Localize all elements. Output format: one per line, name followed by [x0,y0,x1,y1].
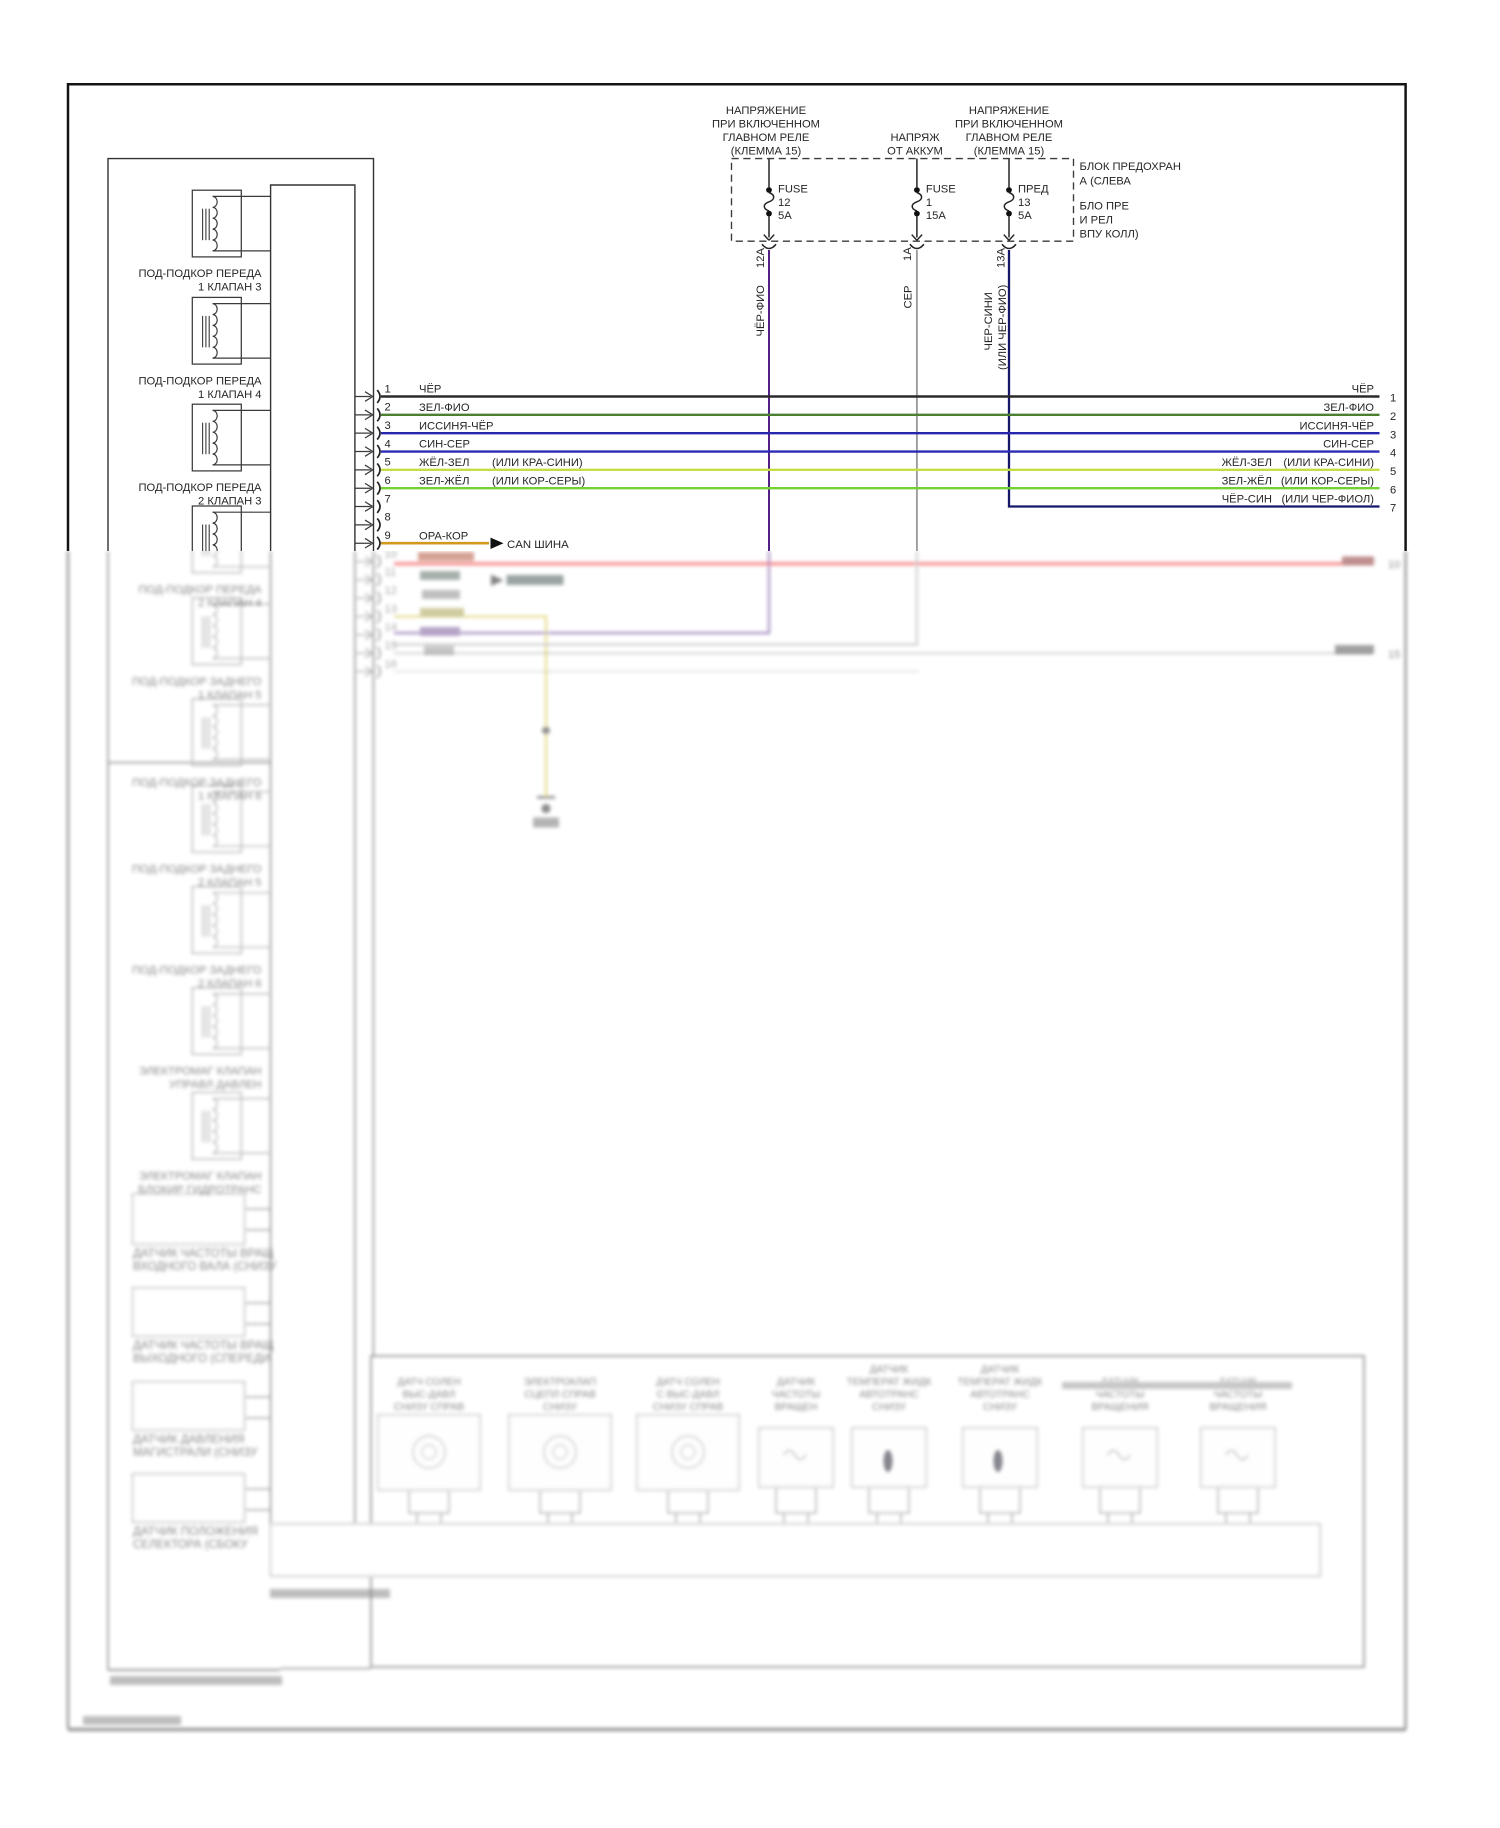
svg-text:ВРАЩЕН: ВРАЩЕН [775,1402,818,1413]
svg-text:ДАТЧИК: ДАТЧИК [777,1377,816,1388]
svg-text:СЕЛЕКТОРА (СБОКУ: СЕЛЕКТОРА (СБОКУ [133,1538,248,1551]
svg-text:ПРЕД: ПРЕД [1018,183,1049,195]
svg-text:(ИЛИ КРА-СИНИ): (ИЛИ КРА-СИНИ) [1283,457,1374,469]
svg-text:ДАТЧИК ЧАСТОТЫ ВРАЩ: ДАТЧИК ЧАСТОТЫ ВРАЩ [133,1247,274,1260]
svg-text:5: 5 [1390,466,1396,478]
svg-text:ВХОДНОГО ВАЛА (СНИЗУ: ВХОДНОГО ВАЛА (СНИЗУ [133,1260,277,1273]
svg-text:10: 10 [1388,559,1400,571]
svg-text:ДАТЧ СОЛЕН: ДАТЧ СОЛЕН [397,1377,460,1388]
svg-text:ПОД-ПОДКОР ЗАДНЕГО: ПОД-ПОДКОР ЗАДНЕГО [132,777,262,789]
svg-text:ДАТЧ СОЛЕН: ДАТЧ СОЛЕН [656,1377,719,1388]
svg-text:И РЕЛ: И РЕЛ [1080,215,1113,227]
svg-text:4: 4 [1390,448,1396,460]
svg-text:ВРАЩЕНИЯ: ВРАЩЕНИЯ [1091,1402,1148,1413]
svg-text:1 КЛАПАН 5: 1 КЛАПАН 5 [198,689,261,701]
svg-text:ВЫХОДНОГО (СПЕРЕДИ: ВЫХОДНОГО (СПЕРЕДИ [133,1352,270,1365]
svg-text:(ИЛИ КОР-СЕРЫ): (ИЛИ КОР-СЕРЫ) [1281,475,1374,487]
svg-text:НАПРЯЖЕНИЕ: НАПРЯЖЕНИЕ [969,105,1049,117]
svg-text:2 КЛАПАН 4: 2 КЛАПАН 4 [198,598,261,610]
svg-text:2 КЛАПАН 6: 2 КЛАПАН 6 [198,978,261,990]
svg-text:ЭЛЕКТРОМАГ КЛАПАН: ЭЛЕКТРОМАГ КЛАПАН [139,1066,261,1078]
svg-text:1: 1 [385,383,391,395]
svg-text:2 КЛАПАН 5: 2 КЛАПАН 5 [198,877,261,889]
svg-text:ДАТЧИК: ДАТЧИК [870,1365,909,1376]
svg-text:FUSE: FUSE [926,183,956,195]
svg-text:13: 13 [385,603,397,615]
svg-text:1 КЛАПАН 6: 1 КЛАПАН 6 [198,790,261,802]
svg-text:ПОД-ПОДКОР ПЕРЕДА: ПОД-ПОДКОР ПЕРЕДА [138,482,262,494]
svg-text:CAN ШИНА: CAN ШИНА [507,539,569,551]
svg-text:(ИЛИ КОР-СЕРЫ): (ИЛИ КОР-СЕРЫ) [492,475,585,487]
svg-text:ТЕМПЕРАТ ЖИДК: ТЕМПЕРАТ ЖИДК [847,1377,932,1388]
svg-text:ЖЁЛ-ЗЕЛ: ЖЁЛ-ЗЕЛ [419,457,469,469]
svg-text:СИН-СЕР: СИН-СЕР [1323,439,1374,451]
svg-text:4: 4 [385,438,391,450]
svg-text:АВТОТРАНС: АВТОТРАНС [970,1390,1029,1401]
svg-text:СНИЗУ: СНИЗУ [983,1402,1018,1413]
svg-text:ОРА-КОР: ОРА-КОР [419,530,468,542]
svg-text:БЛО ПРЕ: БЛО ПРЕ [1080,201,1129,213]
svg-text:1: 1 [926,197,932,209]
svg-text:1 КЛАПАН 3: 1 КЛАПАН 3 [198,282,261,294]
svg-text:8: 8 [385,512,391,524]
svg-text:ПОД-ПОДКОР ЗАДНЕГО: ПОД-ПОДКОР ЗАДНЕГО [132,676,262,688]
svg-text:11: 11 [385,567,397,579]
svg-text:А (СЛЕВА: А (СЛЕВА [1080,176,1132,188]
svg-text:ЧЁР-СИН: ЧЁР-СИН [1222,494,1272,506]
svg-text:ЖЁЛ-ЗЕЛ: ЖЁЛ-ЗЕЛ [1222,457,1272,469]
svg-text:ВПУ КОЛЛ): ВПУ КОЛЛ) [1080,229,1139,241]
svg-text:НАПРЯЖЕНИЕ: НАПРЯЖЕНИЕ [726,105,806,117]
svg-text:1: 1 [1390,393,1396,405]
svg-text:ЧАСТОТЫ: ЧАСТОТЫ [1096,1390,1145,1401]
svg-text:ГЛАВНОМ РЕЛЕ: ГЛАВНОМ РЕЛЕ [966,132,1053,144]
svg-text:ДАТЧИК ЧАСТОТЫ ВРАЩ: ДАТЧИК ЧАСТОТЫ ВРАЩ [133,1339,274,1352]
svg-text:1A: 1A [902,247,914,261]
svg-text:СНИЗУ СПРАВ: СНИЗУ СПРАВ [653,1402,724,1413]
svg-text:ЭЛЕКТРОМАГ КЛАПАН: ЭЛЕКТРОМАГ КЛАПАН [139,1170,261,1182]
svg-text:ЧЁР-ФИО: ЧЁР-ФИО [755,285,767,337]
svg-text:13A: 13A [996,248,1008,268]
svg-text:ПРИ ВКЛЮЧЕННОМ: ПРИ ВКЛЮЧЕННОМ [955,119,1063,131]
svg-text:(ИЛИ ЧЕР-ФИОЛ): (ИЛИ ЧЕР-ФИОЛ) [1281,494,1374,506]
svg-text:7: 7 [385,493,391,505]
svg-text:(КЛЕММА 15): (КЛЕММА 15) [974,146,1045,158]
svg-text:МАГИСТРАЛИ (СНИЗУ: МАГИСТРАЛИ (СНИЗУ [133,1446,258,1459]
svg-text:6: 6 [1390,484,1396,496]
svg-text:ЧАСТОТЫ: ЧАСТОТЫ [1214,1390,1263,1401]
svg-text:ЭЛЕКТРОКЛАП: ЭЛЕКТРОКЛАП [524,1377,596,1388]
svg-text:FUSE: FUSE [778,183,808,195]
svg-text:3: 3 [1390,429,1396,441]
svg-text:ИССИНЯ-ЧЁР: ИССИНЯ-ЧЁР [419,420,494,432]
svg-text:15A: 15A [926,210,946,222]
svg-text:13: 13 [1018,197,1030,209]
svg-text:5A: 5A [778,210,792,222]
svg-text:ПОД-ПОДКОР ПЕРЕДА: ПОД-ПОДКОР ПЕРЕДА [138,375,262,387]
svg-text:ЗЕЛ-ФИО: ЗЕЛ-ФИО [1323,402,1374,414]
svg-text:ВЫС-ДАВЛ: ВЫС-ДАВЛ [403,1390,456,1401]
svg-text:ДАТЧИК: ДАТЧИК [981,1365,1020,1376]
svg-text:СИН-СЕР: СИН-СЕР [419,439,470,451]
svg-text:АВТОТРАНС: АВТОТРАНС [859,1390,918,1401]
svg-text:ОТ АККУМ: ОТ АККУМ [887,146,943,158]
svg-text:ЗЕЛ-ЖЁЛ: ЗЕЛ-ЖЁЛ [1222,475,1272,487]
svg-text:6: 6 [385,475,391,487]
svg-text:15: 15 [385,640,397,652]
svg-text:ГЛАВНОМ РЕЛЕ: ГЛАВНОМ РЕЛЕ [723,132,810,144]
svg-text:СЦЕПЛ СПРАВ: СЦЕПЛ СПРАВ [524,1390,596,1401]
svg-text:5A: 5A [1018,210,1032,222]
svg-text:СЕР: СЕР [903,285,915,308]
svg-text:14: 14 [385,622,397,634]
svg-text:ИССИНЯ-ЧЁР: ИССИНЯ-ЧЁР [1299,420,1374,432]
svg-text:7: 7 [1390,503,1396,515]
svg-text:ПОД-ПОДКОР ЗАДНЕГО: ПОД-ПОДКОР ЗАДНЕГО [132,864,262,876]
svg-text:12A: 12A [755,248,767,268]
svg-text:СНИЗУ: СНИЗУ [543,1402,578,1413]
svg-text:ТЕМПЕРАТ ЖИДК: ТЕМПЕРАТ ЖИДК [958,1377,1043,1388]
svg-text:1 КЛАПАН 4: 1 КЛАПАН 4 [198,389,261,401]
svg-text:ЗЕЛ-ФИО: ЗЕЛ-ФИО [419,402,470,414]
svg-text:СНИЗУ СПРАВ: СНИЗУ СПРАВ [394,1402,465,1413]
svg-text:ЧЕР-СИНИ: ЧЕР-СИНИ [983,292,995,350]
svg-text:ПОД-ПОДКОР ЗАДНЕГО: ПОД-ПОДКОР ЗАДНЕГО [132,965,262,977]
svg-text:(ИЛИ КРА-СИНИ): (ИЛИ КРА-СИНИ) [492,457,583,469]
svg-text:ДАТЧИК ДАВЛЕНИЯ: ДАТЧИК ДАВЛЕНИЯ [133,1433,244,1446]
svg-text:БЛОКИР ГИДРОТРАНС: БЛОКИР ГИДРОТРАНС [138,1184,261,1196]
svg-text:ЧАСТОТЫ: ЧАСТОТЫ [772,1390,821,1401]
svg-text:2: 2 [1390,411,1396,423]
svg-text:2: 2 [385,402,391,414]
svg-text:ВРАЩЕНИЯ: ВРАЩЕНИЯ [1209,1402,1266,1413]
svg-text:СНИЗУ: СНИЗУ [872,1402,907,1413]
svg-text:(КЛЕММА 15): (КЛЕММА 15) [731,146,802,158]
svg-text:ДАТЧИК ПОЛОЖЕНИЯ: ДАТЧИК ПОЛОЖЕНИЯ [133,1525,258,1538]
svg-text:ЧЁР: ЧЁР [419,384,441,396]
svg-text:(ИЛИ ЧЕР-ФИО): (ИЛИ ЧЕР-ФИО) [997,284,1009,370]
svg-text:ПОД-ПОДКОР ПЕРЕДА: ПОД-ПОДКОР ПЕРЕДА [138,268,262,280]
svg-text:ЗЕЛ-ЖЁЛ: ЗЕЛ-ЖЁЛ [419,475,469,487]
svg-text:5: 5 [385,457,391,469]
svg-text:16: 16 [385,658,397,670]
svg-text:БЛОК ПРЕДОХРАН: БЛОК ПРЕДОХРАН [1080,161,1181,173]
svg-text:3: 3 [385,420,391,432]
svg-text:ЧЁР: ЧЁР [1352,384,1374,396]
svg-text:УПРАВЛ ДАВЛЕН: УПРАВЛ ДАВЛЕН [169,1079,261,1091]
svg-text:15: 15 [1388,649,1400,661]
svg-text:С ВЫС-ДАВЛ: С ВЫС-ДАВЛ [657,1390,720,1401]
svg-text:12: 12 [385,585,397,597]
svg-text:ПРИ ВКЛЮЧЕННОМ: ПРИ ВКЛЮЧЕННОМ [712,119,820,131]
svg-text:НАПРЯЖ: НАПРЯЖ [890,132,940,144]
svg-text:9: 9 [385,530,391,542]
svg-text:ПОД-ПОДКОР ПЕРЕДА: ПОД-ПОДКОР ПЕРЕДА [138,584,262,596]
svg-text:12: 12 [778,197,790,209]
